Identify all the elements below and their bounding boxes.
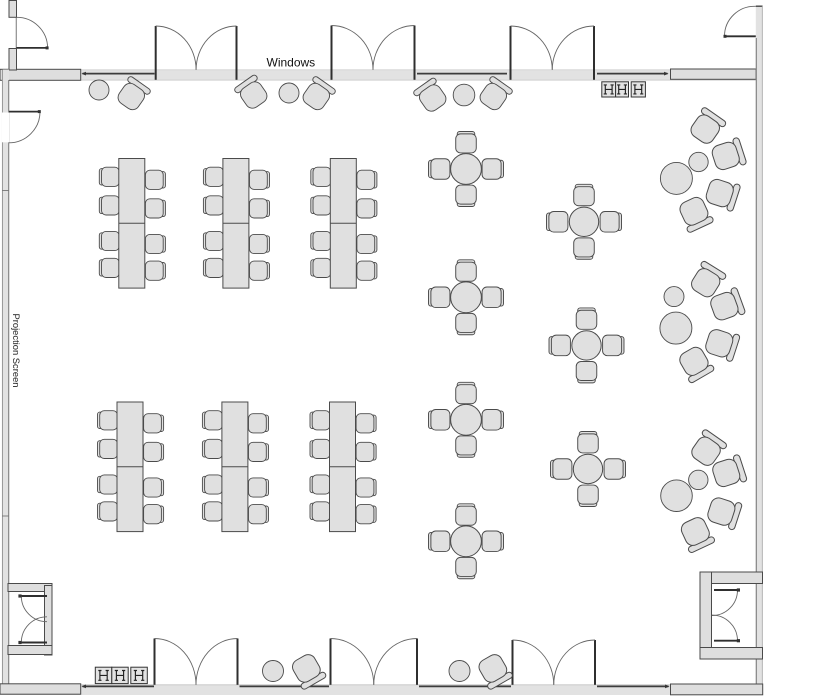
svg-text:Windows: Windows xyxy=(267,56,316,70)
svg-text:Projection Screen: Projection Screen xyxy=(11,314,22,388)
